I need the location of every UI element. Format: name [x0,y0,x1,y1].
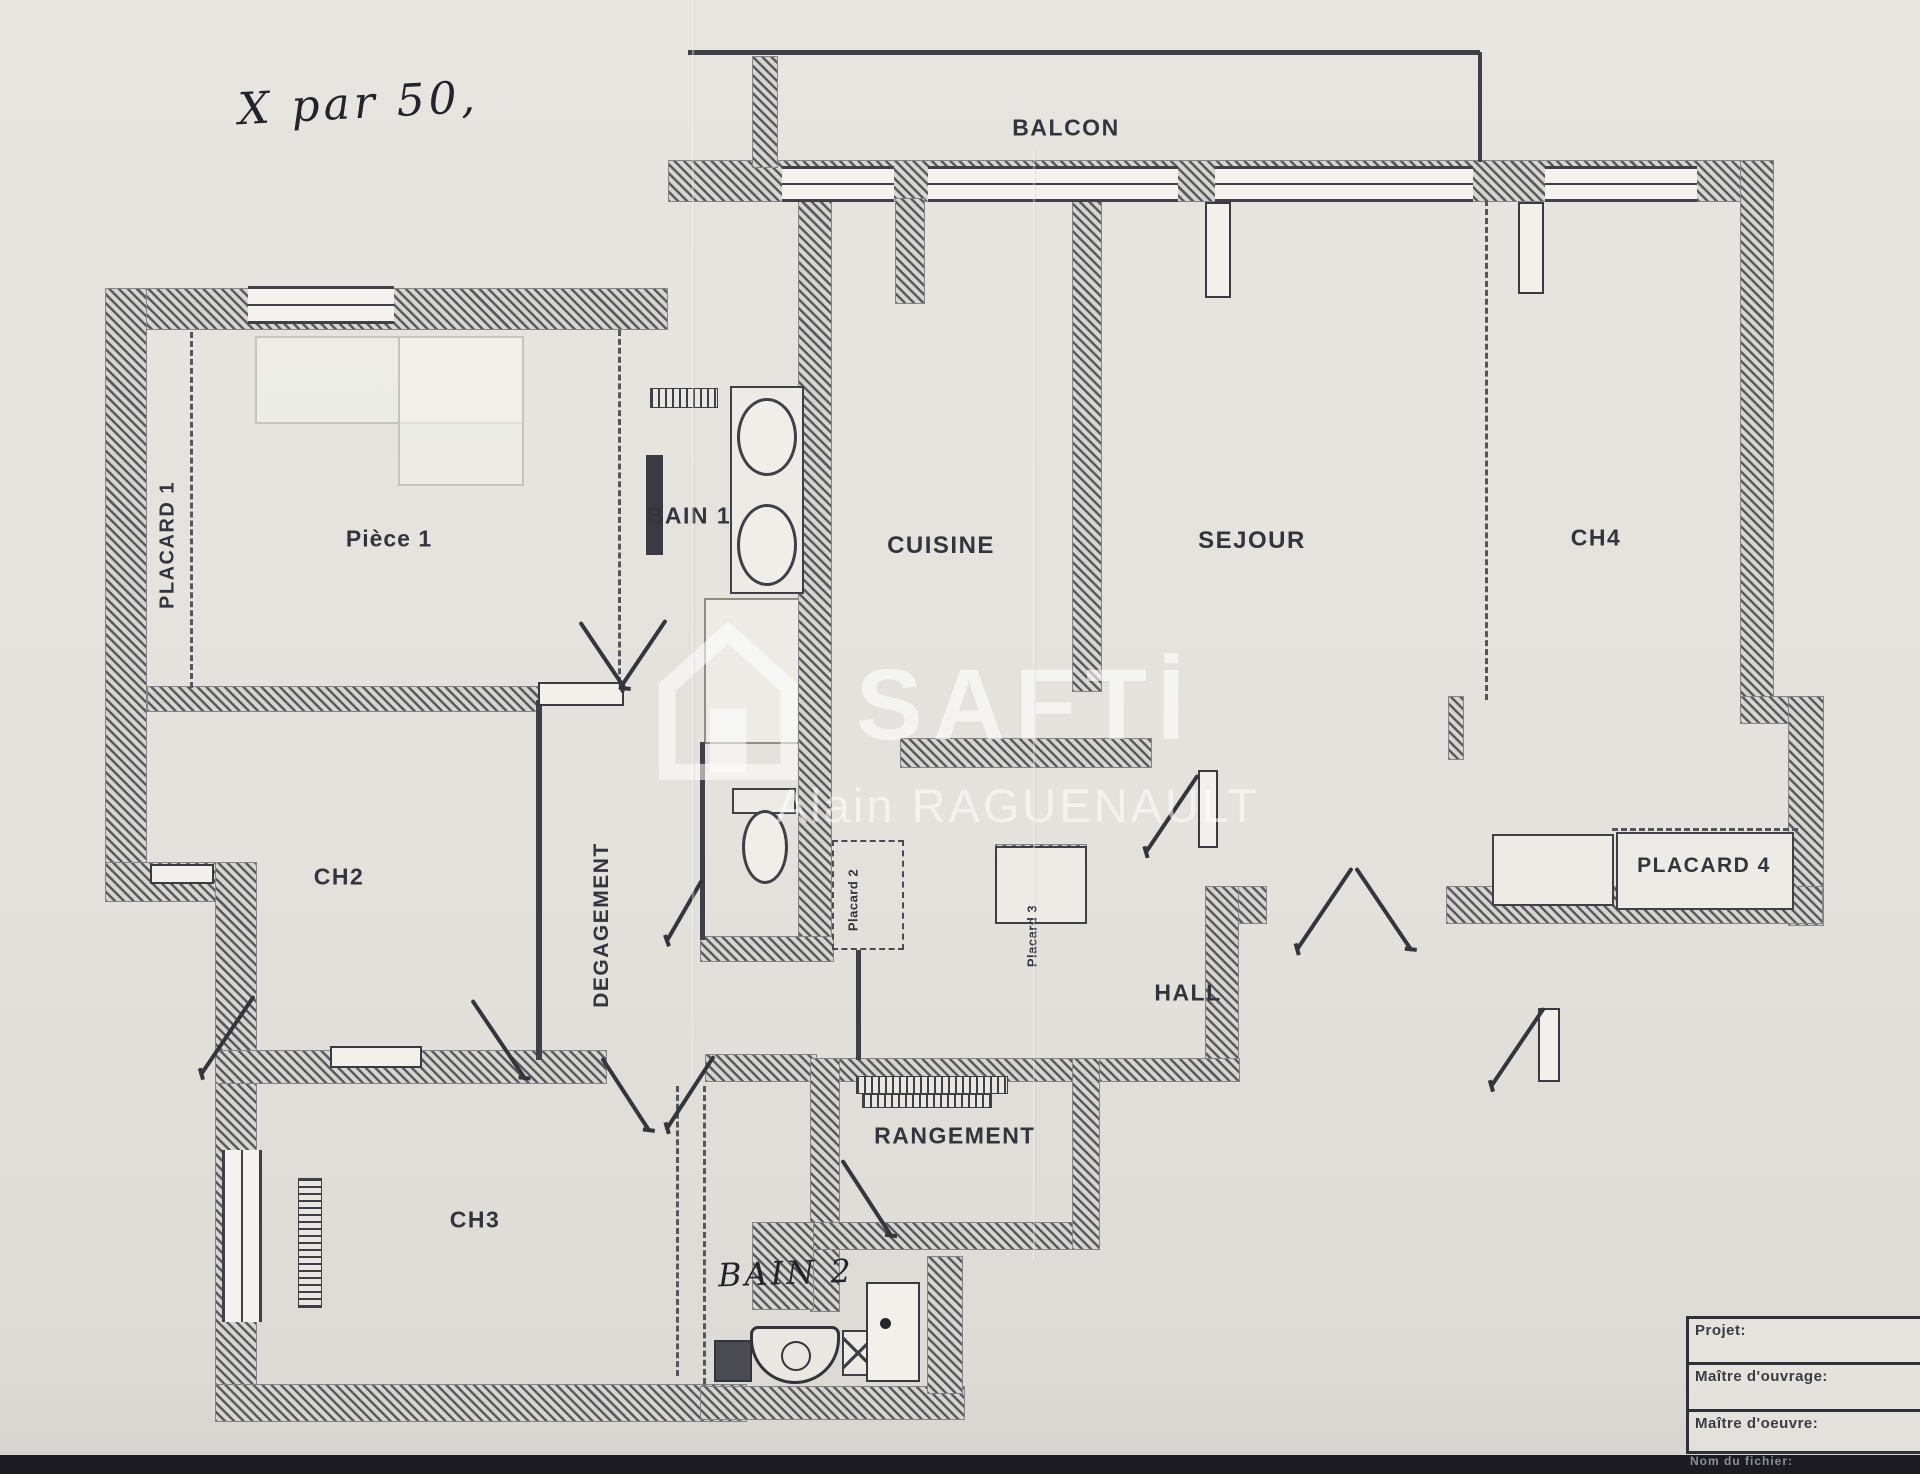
scan-edge-strip [0,1455,1920,1474]
door-hall-right-leaf [1538,1008,1560,1082]
title-block-row: Maître d'ouvrage: [1689,1365,1920,1412]
wall-rangement-bottom [810,1222,1100,1250]
wall-wc-bottom [700,936,834,962]
radiator-icon [298,1178,322,1308]
partition-ch3-right [676,1086,679,1376]
door-swing [1294,867,1353,952]
bain2-handwriting: BAIN 2 [717,1252,854,1295]
room-label-balcon: BALCON [1012,115,1119,142]
window-balcony-c [1215,166,1473,202]
furniture-outline [398,336,524,486]
room-label-rangement: RANGEMENT [874,1123,1036,1150]
room-label-degagement: DEGAGEMENT [590,842,614,1008]
title-block-footer: Nom du fichier: [1690,1454,1920,1468]
balcony-right-line [1478,52,1482,162]
wall-degagement-left [536,700,542,1060]
wall-ch3-left [215,862,257,1422]
wall-piece1-ch2 [147,686,539,712]
radiator-icon [650,388,718,408]
room-label-bain1: BAIN 1 [647,503,731,530]
room-label-ch2: CH2 [314,864,365,891]
placard3-box [995,846,1087,924]
window-ch3 [222,1150,262,1322]
wall-balcony-left [752,56,778,168]
washbasin-icon [737,504,797,586]
door-piece1-leaf [538,682,624,706]
watermark-brand: SAFTİ [856,648,1195,763]
room-label-placard3: Placard 3 [1025,905,1040,967]
wall-left-outer [105,288,147,902]
room-label-placard2: Placard 2 [846,869,861,931]
wall-cuisine-sejour [1072,160,1102,692]
washbasin-icon [737,398,797,476]
title-block-row: Projet: [1689,1319,1920,1365]
wall-bain2-top [705,1054,817,1082]
room-label-placard4: PLACARD 4 [1637,854,1771,878]
entry-door-handle [880,1318,891,1329]
scale-note-handwriting: X par 50, [237,72,480,136]
scanned-floor-plan: BALCON Pièce 1 PLACARD 1 BAIN 1 CUISINE … [0,0,1920,1474]
door-swing [664,879,703,943]
bain2-cabinet [714,1340,752,1382]
watermark-house-icon [652,608,804,780]
door-sejour-balcony [1205,202,1231,298]
wall-bain2-bottom [700,1386,965,1420]
paper-crease [1033,150,1036,1260]
wall-ch3-bottom [215,1384,747,1422]
partition-bain2-left [703,1086,706,1384]
balcony-top-line [688,50,1480,55]
door-swing [600,1057,651,1133]
wall-rangement-right [1072,1058,1100,1250]
entry-door-leaf [866,1282,920,1382]
room-label-cuisine: CUISINE [887,532,995,560]
paper-crease [692,0,695,1080]
wall-hall-left [856,950,861,1060]
bain2-sink-bowl [781,1341,811,1371]
ch4-closet-box [1492,834,1614,906]
window-piece1 [248,286,394,324]
title-block-row: Maître d'oeuvre: [1689,1412,1920,1454]
door-ch4-balcony [1518,202,1544,294]
room-label-piece1: Pièce 1 [346,526,432,553]
watermark-agent: Alain RAGUENAULT [776,778,1259,833]
vent-icon [862,1094,992,1108]
partition-bain1 [618,330,621,692]
room-label-ch4: CH4 [1571,525,1622,552]
room-label-ch3: CH3 [450,1207,501,1234]
wall-right-upper [1740,160,1774,702]
partition-placard1 [190,332,193,688]
room-label-hall: HALL [1154,980,1221,1007]
room-label-sejour: SEJOUR [1198,527,1306,555]
room-label-placard1: PLACARD 1 [157,481,180,609]
window-ch4 [1545,166,1697,202]
partition-placard4-top [1612,828,1798,831]
title-block: Projet: Maître d'ouvrage: Maître d'oeuvr… [1686,1316,1920,1454]
wall-ch4-stub [1448,696,1464,760]
door-ch2-bottom-leaf [330,1046,422,1068]
bain2-sink-icon [750,1326,840,1384]
door-ch2-left-leaf [150,864,214,884]
wall-window-stub [895,198,925,304]
partition-sejour-ch4 [1485,200,1488,700]
window-balcony-a [782,166,894,202]
door-swing [664,1055,715,1131]
wall-bain2-right [927,1256,963,1394]
vent-icon [856,1076,1008,1094]
door-swing [1354,867,1413,952]
placard2-box [832,840,904,950]
window-balcony-b [928,166,1178,202]
